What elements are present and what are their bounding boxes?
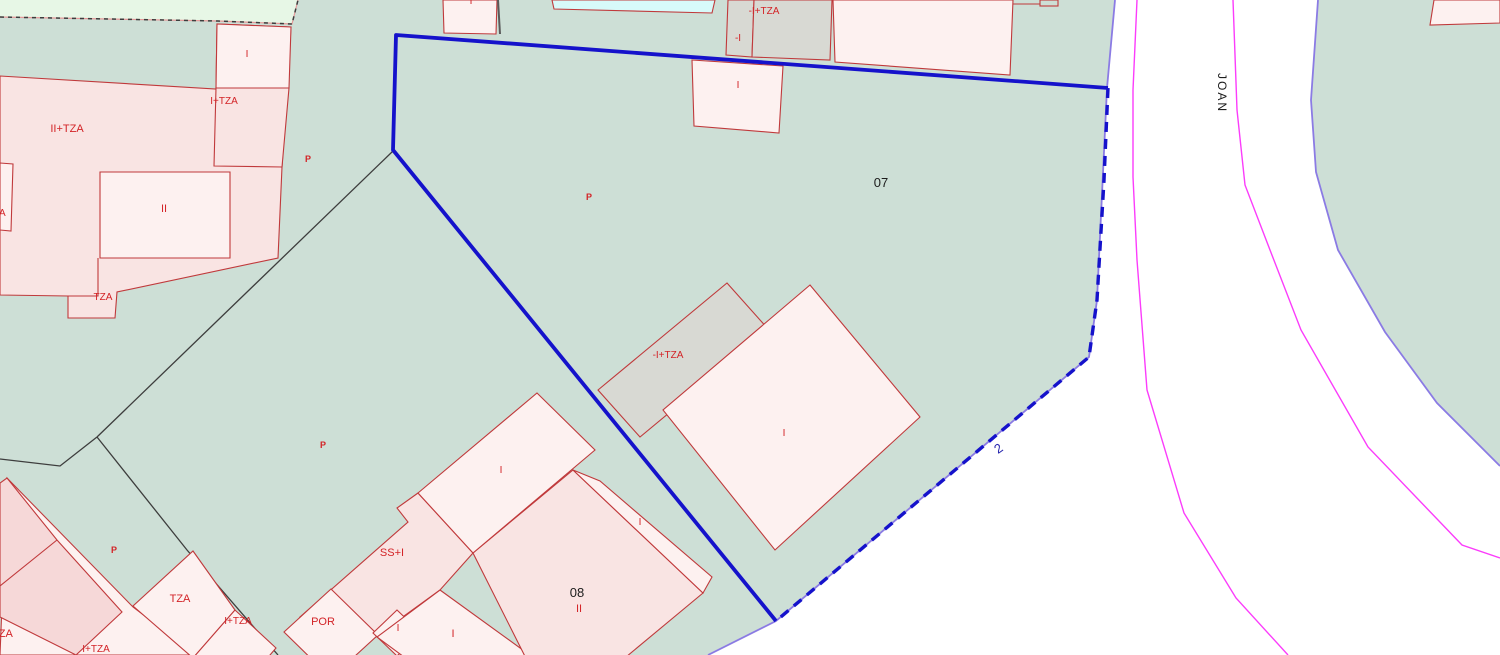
map-label-block-number-08: 08 xyxy=(570,585,584,600)
map-label-floors-i-top: I xyxy=(737,80,740,91)
map-label-floors-i-cut-top: I xyxy=(470,0,473,7)
cadastral-map[interactable]: II+TZAII+TZAIIATZAPI-I+TZA-IIP07JOAN2-I+… xyxy=(0,0,1500,655)
map-label-floors-i-tza-topleft: I+TZA xyxy=(210,96,238,107)
map-label-floors-i-med: I xyxy=(451,628,454,640)
map-label-floors-neg-i-tza-mid: -I+TZA xyxy=(653,350,684,361)
street-centerline-magenta-1 xyxy=(1133,0,1288,655)
map-label-floors-neg-i-top: -I xyxy=(735,33,741,44)
map-label-floors-neg-i-tza-top: -I+TZA xyxy=(749,6,780,17)
map-label-floors-i-small: I xyxy=(397,623,400,634)
map-label-p-marker-4: P xyxy=(111,545,117,555)
map-label-floors-tza-cut: TZA xyxy=(0,628,13,640)
building-ii[interactable] xyxy=(100,172,230,258)
map-label-floors-ii-08: II xyxy=(576,603,582,615)
map-label-floors-ss-i: SS+I xyxy=(380,547,404,559)
map-label-block-number-07: 07 xyxy=(874,175,888,190)
map-label-floors-por: POR xyxy=(311,616,335,628)
map-label-p-marker-2: P xyxy=(586,192,592,202)
building-topright-big[interactable] xyxy=(833,0,1013,75)
map-label-floors-tza-bottom: TZA xyxy=(170,593,191,605)
map-label-p-marker-1: P xyxy=(305,154,311,164)
cadastral-map-viewport: II+TZAII+TZAIIATZAPI-I+TZA-IIP07JOAN2-I+… xyxy=(0,0,1500,655)
map-label-floors-i-bldg1: I xyxy=(500,465,503,476)
parcel-a-leftedge[interactable] xyxy=(0,163,13,231)
parcel-i-topleft[interactable] xyxy=(216,24,291,88)
map-label-floors-i-diamond: I xyxy=(783,428,786,439)
map-label-floors-i-tza-bottom: I+TZA xyxy=(224,616,252,627)
east-urban-block-area[interactable] xyxy=(1311,0,1500,465)
map-label-p-marker-3: P xyxy=(320,440,326,450)
building-topright-corner[interactable] xyxy=(1430,0,1500,25)
map-label-floors-i-strip: I xyxy=(639,517,642,528)
map-label-floors-a-cut: A xyxy=(0,208,6,219)
map-label-street-number-2: 2 xyxy=(991,440,1006,456)
map-label-floors-i-tza-corner: I+TZA xyxy=(82,644,110,655)
map-label-floors-tza-left: TZA xyxy=(94,292,113,303)
map-label-floors-ii-tza: II+TZA xyxy=(50,123,84,135)
building-i-below-boundary[interactable] xyxy=(692,60,783,133)
map-label-floors-ii: II xyxy=(161,203,167,215)
map-label-street-name: JOAN xyxy=(1215,73,1229,113)
map-label-floors-i-topleft: I xyxy=(246,49,249,60)
